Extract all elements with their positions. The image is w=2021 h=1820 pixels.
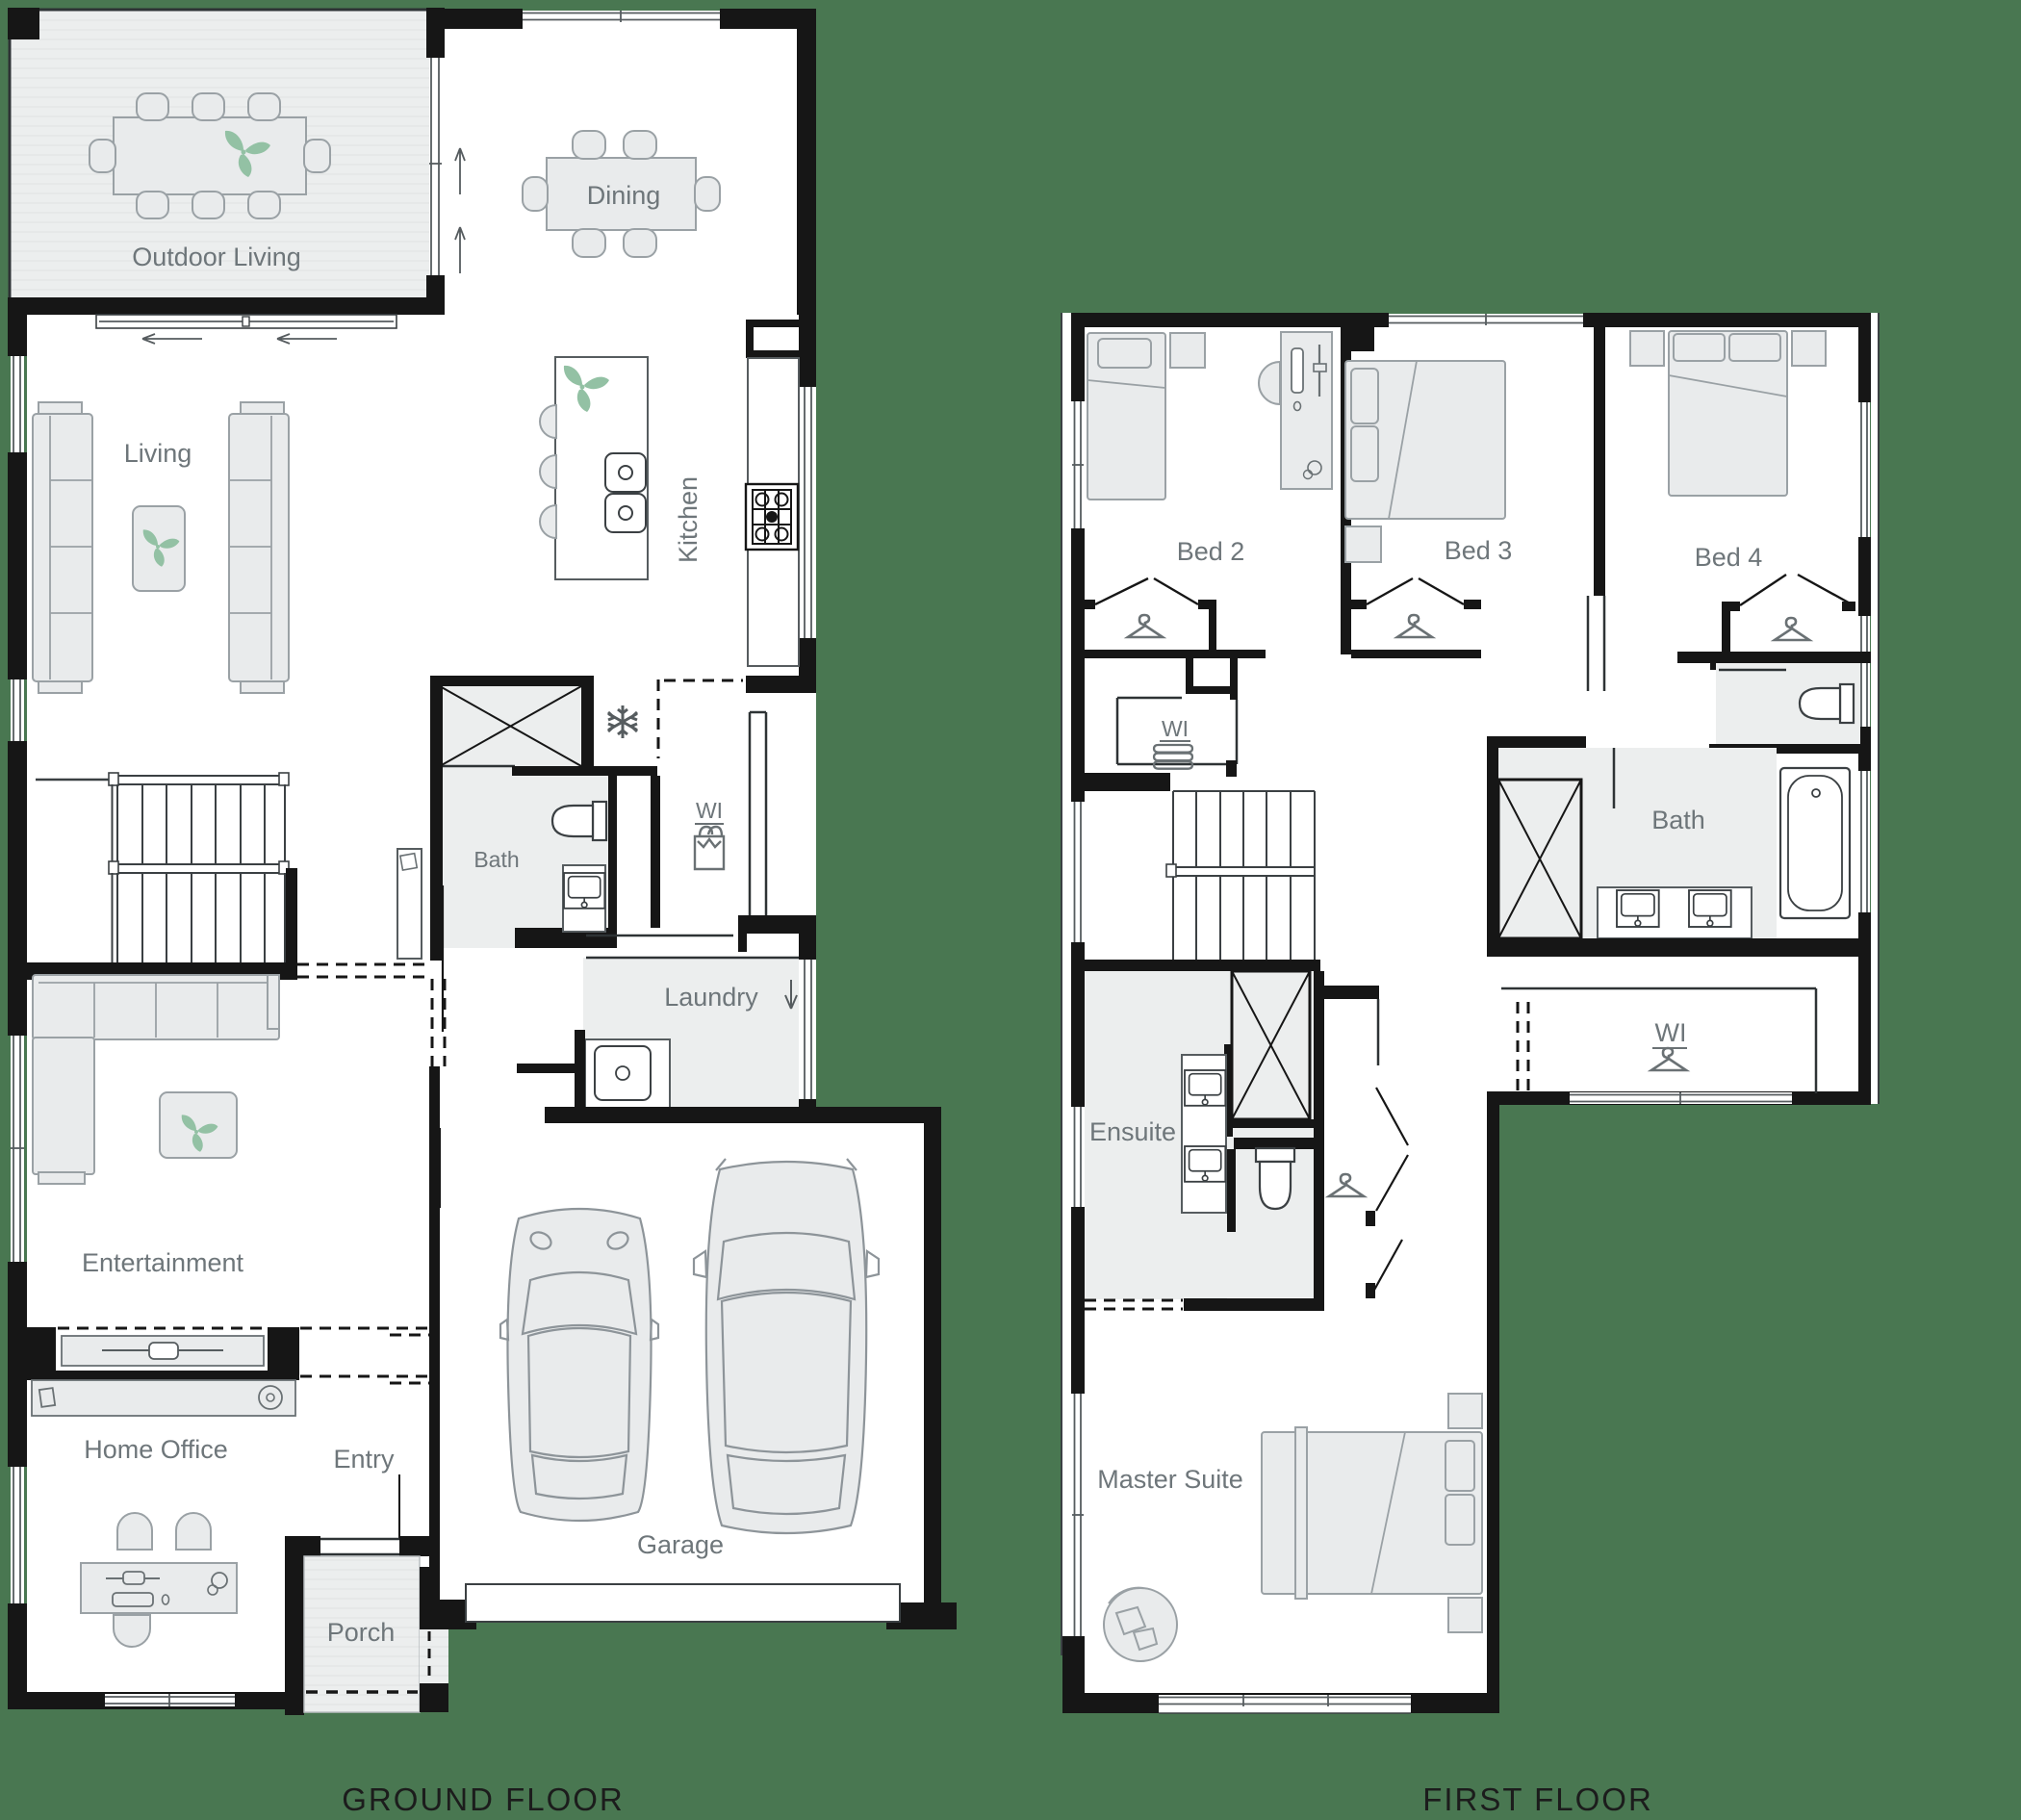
svg-text:Bed 3: Bed 3 <box>1445 536 1513 565</box>
svg-text:Bed 4: Bed 4 <box>1695 543 1763 572</box>
svg-text:Ensuite: Ensuite <box>1089 1117 1176 1146</box>
svg-text:Bath: Bath <box>1651 806 1705 834</box>
svg-text:Kitchen: Kitchen <box>674 476 703 563</box>
svg-text:WI: WI <box>1655 1018 1687 1047</box>
svg-text:Living: Living <box>124 439 192 468</box>
svg-text:GROUND FLOOR: GROUND FLOOR <box>342 1782 625 1817</box>
svg-text:Master Suite: Master Suite <box>1097 1465 1243 1494</box>
svg-text:Laundry: Laundry <box>664 983 758 1012</box>
svg-text:WI: WI <box>1162 716 1189 741</box>
svg-text:Garage: Garage <box>637 1530 724 1559</box>
svg-text:Home Office: Home Office <box>84 1435 228 1464</box>
svg-text:Entry: Entry <box>333 1445 395 1474</box>
svg-text:FIRST FLOOR: FIRST FLOOR <box>1422 1782 1653 1817</box>
svg-text:Entertainment: Entertainment <box>82 1248 244 1277</box>
svg-text:Bed 2: Bed 2 <box>1177 537 1245 566</box>
svg-text:Porch: Porch <box>327 1618 396 1647</box>
svg-text:Bath: Bath <box>473 847 519 872</box>
svg-text:WI: WI <box>696 798 723 823</box>
svg-text:Outdoor Living: Outdoor Living <box>132 243 301 271</box>
svg-text:Dining: Dining <box>587 181 661 210</box>
